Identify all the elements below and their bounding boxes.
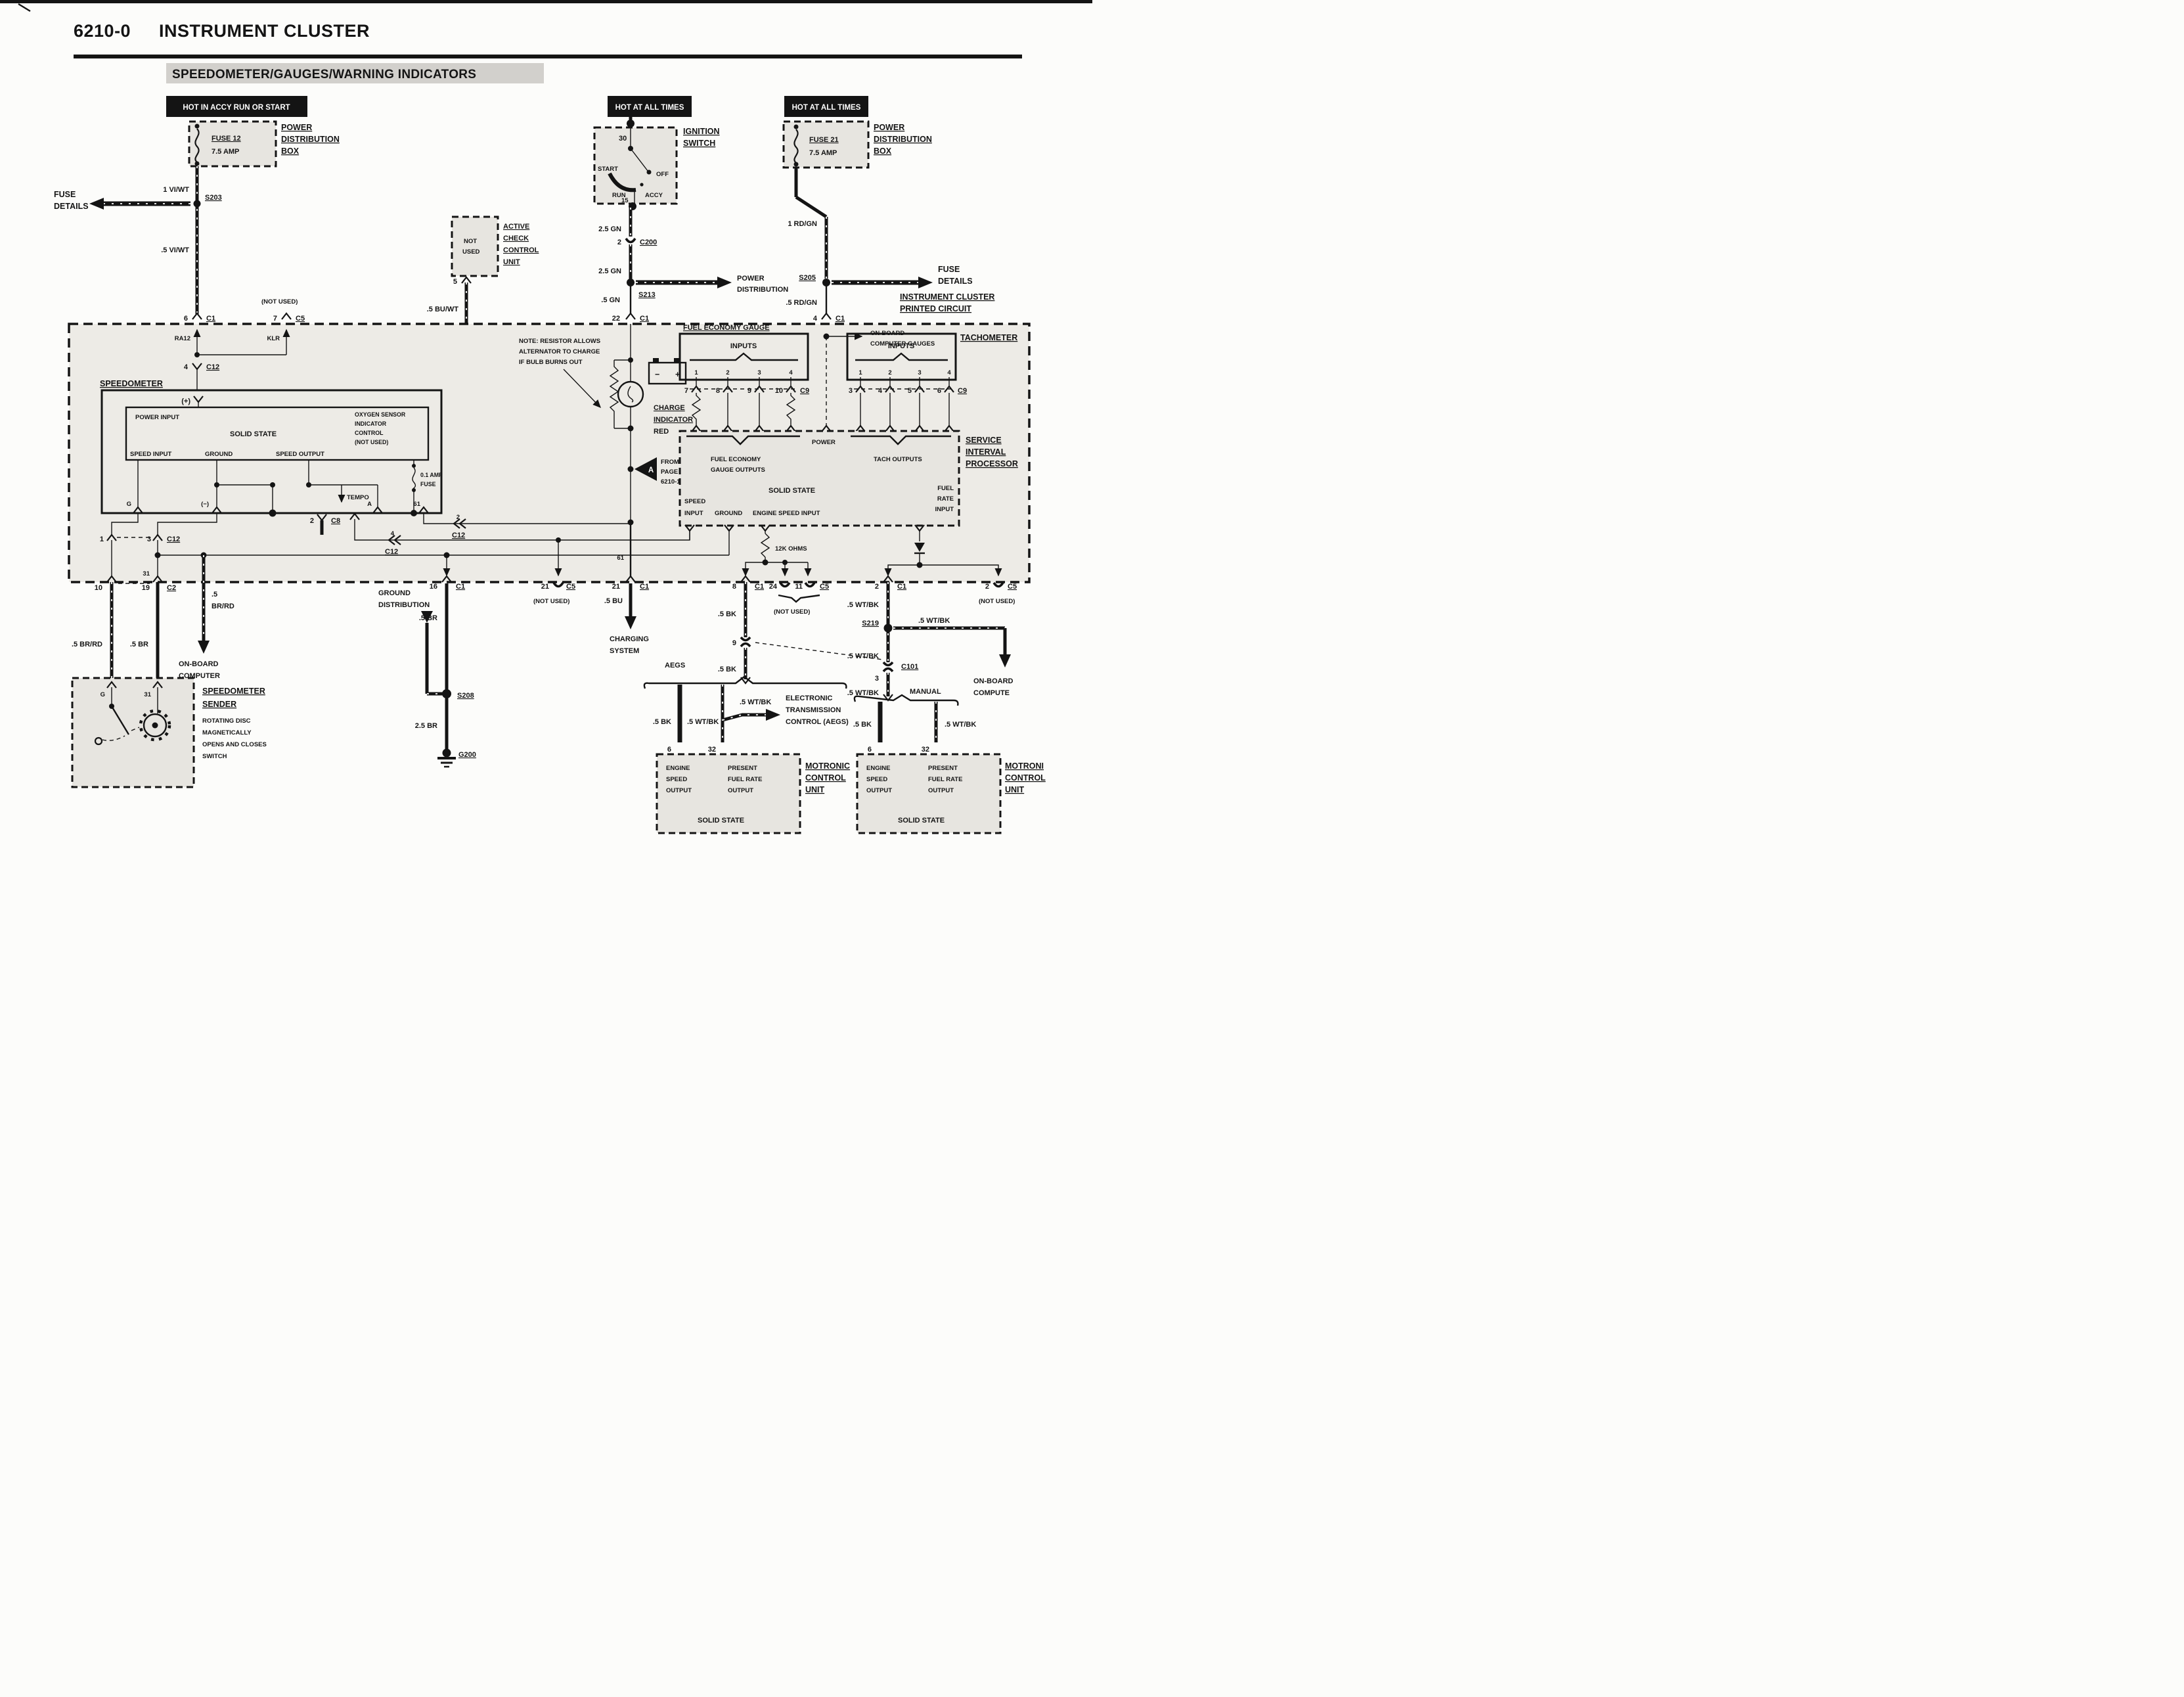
power-input: POWER INPUT [135, 414, 179, 421]
wire-label: .5 BK [718, 610, 736, 618]
wire-label: .5 BU [604, 597, 623, 605]
engine-output: OUTPUT [666, 787, 692, 794]
fuel-output: OUTPUT [928, 787, 954, 794]
pin-5: 5 [453, 278, 457, 286]
pin-3: 3 [147, 535, 151, 543]
acc-label: UNIT [503, 258, 520, 266]
diagram-canvas: 6210-0 INSTRUMENT CLUSTER SPEEDOMETER/GA… [0, 0, 1092, 849]
sender-label: SENDER [202, 700, 236, 709]
pin-4: 4 [813, 315, 818, 323]
left-power-wire: 1 VI/WT S203 FUSE DETAILS .5 VI/WT 6 C1 … [54, 166, 305, 323]
input-3: 3 [918, 369, 921, 376]
wire-label: 2.5 GN [598, 267, 621, 275]
etc-label: TRANSMISSION [786, 706, 841, 714]
oxygen-label: (NOT USED) [355, 439, 388, 445]
sip-engine: ENGINE SPEED INPUT [753, 510, 820, 517]
pin-24: 24 [769, 583, 778, 591]
pin-2: 2 [310, 517, 314, 525]
wire-label: .5 WT/BK [847, 652, 879, 660]
fuse-terminal [412, 464, 416, 468]
pin-9: 9 [732, 639, 736, 647]
from-page-line: PAGE [661, 468, 678, 476]
sip-speed: SPEED [684, 498, 705, 505]
fuse-details-label: DETAILS [938, 277, 973, 286]
sender-desc: ROTATING DISC [202, 717, 251, 725]
arrowhead-down-icon [625, 616, 636, 629]
pin-8: 8 [716, 387, 720, 395]
sender-desc: SWITCH [202, 753, 227, 760]
pin-32: 32 [708, 746, 716, 754]
sip-label: INTERVAL [966, 447, 1006, 457]
pin-minus: (−) [201, 501, 209, 508]
fuse-amp: 7.5 AMP [809, 149, 837, 157]
speedometer-title: SPEEDOMETER [100, 379, 163, 388]
ohms-label: 12K OHMS [775, 545, 807, 553]
aegs-label: AEGS [665, 662, 685, 669]
fuse-name: FUSE 21 [809, 136, 839, 144]
arrowhead-left-icon [89, 198, 104, 210]
pin-21: 21 [541, 583, 549, 591]
pin-3: 3 [875, 675, 879, 683]
sender-pin-g: G [100, 691, 105, 698]
motronic-label: UNIT [1005, 785, 1025, 794]
pin-4: 4 [184, 363, 189, 371]
ground: GROUND [205, 451, 233, 458]
connector-c5: C5 [1008, 583, 1017, 591]
splice-s219-dot [884, 624, 893, 633]
fe-outputs: FUEL ECONOMY [711, 456, 761, 463]
sender-circuit: .5 BR/RD .5 BR G 31 SPEEDOMETER SENDER R… [72, 582, 267, 787]
pin-g: G [127, 501, 131, 508]
engine-output: OUTPUT [866, 787, 892, 794]
splice-s208: S208 [457, 692, 474, 700]
sip-input: INPUT [684, 510, 703, 517]
not-used: (NOT USED) [774, 608, 810, 616]
acc-label: ACTIVE [503, 223, 529, 231]
banner-hot-all-1: HOT AT ALL TIMES [608, 96, 692, 117]
motronic-label: MOTRONIC [805, 761, 850, 771]
pin-5: 5 [908, 387, 912, 395]
pin-7: 7 [273, 315, 277, 323]
connector-c9: C9 [800, 387, 809, 395]
pin-a: A [367, 501, 372, 508]
wire-label: 1 VI/WT [163, 186, 189, 194]
sip-power: POWER [812, 439, 836, 446]
solid-state: SOLID STATE [230, 430, 277, 438]
pin-10: 10 [95, 584, 102, 592]
banner-hot-accy: HOT IN ACCY RUN OR START [166, 96, 307, 117]
input-3: 3 [757, 369, 761, 376]
acc-box [452, 217, 498, 276]
oxygen-label: INDICATOR [355, 420, 387, 427]
splice-s213: S213 [638, 291, 656, 299]
wire-label: .5 BU/WT [427, 305, 459, 313]
battery-terminal [653, 358, 659, 363]
connector-c8: C8 [331, 517, 340, 525]
brace [778, 595, 820, 602]
etc-label: CONTROL (AEGS) [786, 718, 849, 726]
tach-title: TACHOMETER [960, 333, 1017, 342]
fuse-label: FUSE [420, 481, 436, 487]
wire-label: 2.5 GN [598, 225, 621, 233]
splice-s205: S205 [799, 274, 816, 282]
from-page-a: A [648, 466, 654, 474]
pin-61: 61 [413, 501, 420, 508]
wire-label: 2.5 BR [415, 722, 437, 730]
pdb-label: DISTRIBUTION [874, 135, 932, 144]
subtitle: SPEEDOMETER/GAUGES/WARNING INDICATORS [172, 68, 476, 81]
acc-not: NOT [464, 238, 477, 245]
ground-distribution-branch: 16 C1 .5 BR GROUND DISTRIBUTION S208 2.5… [378, 553, 476, 767]
connector-c101: C101 [901, 663, 918, 671]
etc-label: ELECTRONIC [786, 694, 833, 702]
solid-state: SOLID STATE [698, 817, 744, 825]
input-4: 4 [789, 369, 793, 376]
fuse-details-label: FUSE [54, 190, 76, 199]
note-line: NOTE: RESISTOR ALLOWS [519, 338, 600, 345]
accy-tick [640, 183, 643, 186]
engine-output: SPEED [666, 776, 687, 783]
solid-state: SOLID STATE [898, 817, 945, 825]
plus-label: (+) [181, 397, 190, 405]
sip-label: SERVICE [966, 436, 1002, 445]
fuse-terminal [195, 162, 200, 166]
pin-32: 32 [922, 746, 929, 754]
off-dot [647, 170, 652, 175]
connector-c5: C5 [296, 315, 305, 323]
tach-outputs: TACH OUTPUTS [874, 456, 922, 463]
wire-label: BR/RD [212, 602, 234, 610]
connector-c200: C200 [640, 238, 657, 246]
connector-c12: C12 [167, 535, 180, 543]
banner-label: HOT AT ALL TIMES [615, 104, 684, 112]
pin-6: 6 [184, 315, 188, 323]
sip-fuel: RATE [937, 495, 954, 503]
scan-edge [0, 0, 1092, 3]
connector-c1: C1 [755, 583, 764, 591]
bus-junction-dot [411, 510, 417, 516]
arrowhead-right-icon [918, 277, 933, 288]
charge-label: CHARGE [654, 404, 685, 412]
terminal-30-dot [627, 120, 635, 127]
fuse-amp-label: 0.1 AMP [420, 472, 443, 478]
not-used: (NOT USED) [261, 298, 298, 305]
pin-6: 6 [667, 746, 671, 754]
banner-label: HOT AT ALL TIMES [792, 104, 861, 112]
sip-fuel: INPUT [935, 506, 954, 513]
pin-19: 19 [142, 584, 150, 592]
fuse-amp: 7.5 AMP [212, 148, 239, 156]
wire-label: .5 [212, 591, 217, 599]
fuse-details-label: DETAILS [54, 202, 89, 211]
not-used: (NOT USED) [533, 598, 569, 605]
wire-label: .5 GN [601, 296, 620, 304]
power-dist-label: DISTRIBUTION [737, 286, 788, 294]
pin-6: 6 [868, 746, 872, 754]
onboard-label: ON-BOARD [179, 660, 219, 668]
engine-output: ENGINE [666, 765, 690, 772]
fuse-terminal [195, 124, 200, 129]
wire-label: 1 RD/GN [788, 220, 817, 228]
acc-used: USED [462, 248, 480, 256]
ignition-label: IGNITION [683, 127, 720, 136]
pin-chevron-icon [554, 583, 563, 587]
sip-ground: GROUND [715, 510, 742, 517]
connector-c1: C1 [640, 315, 649, 323]
sip-label: PROCESSOR [966, 459, 1018, 468]
pdb-label: POWER [874, 123, 904, 132]
wire-label: .5 VI/WT [161, 246, 189, 254]
motronic-label: UNIT [805, 785, 825, 794]
connector-c5: C5 [820, 583, 829, 591]
connector-c101-icon [883, 662, 893, 666]
aegs-buses: AEGS .5 BK 6 .5 WT/BK 32 .5 WT/BK ELECTR… [644, 662, 976, 754]
note-line: ALTERNATOR TO CHARGE [519, 348, 600, 355]
klr-label: KLR [267, 335, 280, 342]
etc-arrow [723, 715, 766, 720]
pin-chevron-icon [462, 277, 471, 283]
fe-outputs: GAUGE OUTPUTS [711, 466, 765, 474]
input-1: 1 [858, 369, 862, 376]
inline-connector-icon [741, 644, 750, 647]
pdb-label: BOX [874, 147, 892, 156]
pin-2: 2 [617, 238, 621, 246]
connector-c1: C1 [456, 583, 465, 591]
engine-output: SPEED [866, 776, 887, 783]
splice-g200: G200 [458, 751, 476, 759]
sender-label: SPEEDOMETER [202, 687, 265, 696]
pin-chevron-icon [192, 313, 202, 319]
pin-8: 8 [732, 583, 736, 591]
connector-c1: C1 [897, 583, 906, 591]
wire-label: .5 WT/BK [918, 617, 950, 625]
connector-c2: C2 [167, 584, 176, 592]
sender-desc: MAGNETICALLY [202, 729, 252, 736]
onboard-label: COMPUTER [179, 672, 220, 680]
page-code: 6210-0 [74, 21, 131, 41]
pin-2: 2 [457, 514, 460, 521]
ignition-feed-wire: 2.5 GN 2 C200 2.5 GN POWER DISTRIBUTION … [598, 208, 788, 323]
fuel-output: PRESENT [928, 765, 958, 772]
wire-label: .5 WT/BK [847, 689, 879, 697]
splice-s203: S203 [205, 194, 222, 202]
ignition-label: SWITCH [683, 139, 715, 148]
fuse-details-label: FUSE [938, 265, 960, 274]
power-dist-label: POWER [737, 275, 765, 283]
fuel-output: OUTPUT [728, 787, 753, 794]
pos-accy: ACCY [645, 192, 663, 199]
junction-dot [628, 466, 634, 472]
connector-c1: C1 [836, 315, 845, 323]
onboard-label: ON-BOARD [973, 677, 1014, 685]
from-page-line: 6210-1 [661, 478, 680, 486]
cluster-label: INSTRUMENT CLUSTER [900, 292, 994, 302]
sip-fuel: FUEL [937, 485, 954, 492]
terminal-30: 30 [619, 135, 627, 143]
fuse-box [189, 122, 276, 166]
pin-16: 16 [430, 583, 437, 591]
from-page-line: FROM [661, 459, 679, 466]
charge-red: RED [654, 428, 669, 436]
pin-4: 4 [878, 387, 883, 395]
pdb-label: DISTRIBUTION [281, 135, 340, 144]
splice-s203-dot [194, 200, 201, 208]
pdb-label: BOX [281, 147, 300, 156]
not-used: (NOT USED) [979, 598, 1015, 605]
manual-label: MANUAL [910, 688, 941, 696]
input-1: 1 [694, 369, 698, 376]
pos-off: OFF [656, 171, 669, 178]
onboard-label: COMPUTE [973, 689, 1010, 697]
arrowhead-down-icon [198, 641, 210, 654]
splice-s219: S219 [862, 620, 879, 627]
ground-dist-label: DISTRIBUTION [378, 601, 430, 609]
fe-inputs: INPUTS [730, 342, 757, 350]
connector-c9: C9 [958, 387, 967, 395]
note-line: IF BULB BURNS OUT [519, 359, 583, 366]
oxygen-label: CONTROL [355, 430, 384, 436]
cluster-label: PRINTED CIRCUIT [900, 304, 971, 313]
battery-minus: − [655, 370, 659, 379]
motronic-label: CONTROL [805, 773, 846, 782]
fe-title: FUEL ECONOMY GAUGE [683, 324, 770, 332]
wire-label: .5 BK [653, 718, 671, 726]
pin-chevron-icon [822, 313, 831, 319]
wire-label: .5 BR/RD [72, 641, 102, 648]
pin-10: 10 [775, 387, 783, 395]
motronic-label: MOTRONI [1005, 761, 1044, 771]
speed-output: SPEED OUTPUT [276, 451, 324, 458]
input-2: 2 [726, 369, 729, 376]
disc-center [152, 723, 158, 729]
connector-c1: C1 [206, 315, 215, 323]
wire-label: .5 WT/BK [847, 601, 879, 609]
sip-solid-state: SOLID STATE [769, 487, 815, 495]
connector-c5: C5 [566, 583, 575, 591]
tach-inputs: INPUTS [888, 342, 914, 350]
pin-22: 22 [612, 315, 620, 323]
pin-11: 11 [795, 583, 803, 591]
pin-7: 7 [684, 387, 688, 395]
pos-start: START [598, 166, 618, 173]
pin-31: 31 [143, 570, 150, 577]
header: 6210-0 INSTRUMENT CLUSTER SPEEDOMETER/GA… [74, 21, 1022, 83]
pin-9: 9 [747, 387, 751, 395]
fuse-terminal [794, 125, 799, 129]
sender-pin-31: 31 [144, 691, 151, 698]
wire-label: .5 WT/BK [945, 721, 976, 729]
fuse12-box: FUSE 12 7.5 AMP POWER DISTRIBUTION BOX [189, 122, 340, 166]
pin-chevron-icon [994, 583, 1003, 587]
wire-label: .5 BK [853, 721, 872, 729]
fuse-name: FUSE 12 [212, 135, 241, 143]
pdb-label: POWER [281, 123, 312, 132]
banner-hot-all-2: HOT AT ALL TIMES [784, 96, 868, 117]
motronic-right: ENGINE SPEED OUTPUT PRESENT FUEL RATE OU… [857, 754, 1046, 833]
fuel-output: FUEL RATE [728, 776, 762, 783]
pin-2: 2 [875, 583, 879, 591]
scan-mark [18, 4, 30, 11]
arrowhead-right-icon [766, 709, 780, 721]
sender-box [72, 678, 194, 787]
tempo: TEMPO [347, 494, 369, 501]
seg [796, 197, 826, 217]
charging-label: CHARGING [610, 635, 649, 643]
pin-chevron-icon [282, 313, 291, 319]
motronic-left: ENGINE SPEED OUTPUT PRESENT FUEL RATE OU… [657, 754, 850, 833]
wire-label: .5 BR [130, 641, 148, 648]
ground-dist-label: GROUND [378, 589, 411, 597]
charging-label: SYSTEM [610, 647, 639, 655]
wire-label: .5 BK [718, 666, 736, 673]
connector-c12: C12 [385, 548, 398, 556]
motronic-label: CONTROL [1005, 773, 1046, 782]
fuse21-box: FUSE 21 7.5 AMP POWER DISTRIBUTION BOX [784, 122, 932, 168]
wire-label: .5 RD/GN [786, 299, 817, 307]
inline-connector-icon [741, 637, 750, 641]
pin-1: 1 [100, 535, 104, 543]
g200-dot [443, 749, 451, 758]
arrowhead-down-icon [999, 654, 1011, 667]
banner-label: HOT IN ACCY RUN OR START [183, 104, 290, 112]
acc-label: CHECK [503, 235, 529, 242]
speed-input: SPEED INPUT [130, 451, 172, 458]
connector-c101-icon [883, 669, 893, 672]
wire-label: .5 WT/BK [740, 698, 771, 706]
connector-icon [626, 238, 635, 242]
cluster-caption: INSTRUMENT CLUSTER PRINTED CIRCUIT [900, 292, 994, 313]
arrowhead-right-icon [717, 277, 732, 288]
fuel-output: FUEL RATE [928, 776, 962, 783]
connector-c12: C12 [452, 532, 465, 539]
input-2: 2 [888, 369, 891, 376]
sender-desc: OPENS AND CLOSES [202, 741, 267, 748]
terminal-15: 15 [621, 197, 629, 204]
pin-21: 21 [612, 583, 620, 591]
engine-output: ENGINE [866, 765, 890, 772]
fuel-output: PRESENT [728, 765, 757, 772]
fuse-terminal [794, 162, 799, 167]
pin-4: 4 [391, 530, 395, 537]
ra12-label: RA12 [175, 335, 190, 342]
pin-6: 6 [937, 387, 941, 395]
bus-junction-dot [269, 510, 277, 517]
input-4: 4 [947, 369, 951, 376]
wire-label: .5 WT/BK [687, 718, 719, 726]
acc-label: CONTROL [503, 246, 539, 254]
connector-c12: C12 [206, 363, 219, 371]
wiring-diagram-page: 6210-0 INSTRUMENT CLUSTER SPEEDOMETER/GA… [0, 0, 1092, 849]
pin-chevron-icon [805, 583, 814, 587]
pin-3: 3 [849, 387, 853, 395]
oxygen-label: OXYGEN SENSOR [355, 411, 406, 418]
pin-chevron-icon [780, 583, 790, 587]
pin-2: 2 [985, 583, 989, 591]
pin-chevron-icon [626, 313, 635, 319]
connector-c1: C1 [640, 583, 649, 591]
ignition-switch: 30 OFF START RUN ACCY 15 IGNITION SWITCH [594, 117, 720, 210]
charge-label: INDICATOR [654, 416, 693, 424]
page-title: INSTRUMENT CLUSTER [159, 21, 370, 41]
